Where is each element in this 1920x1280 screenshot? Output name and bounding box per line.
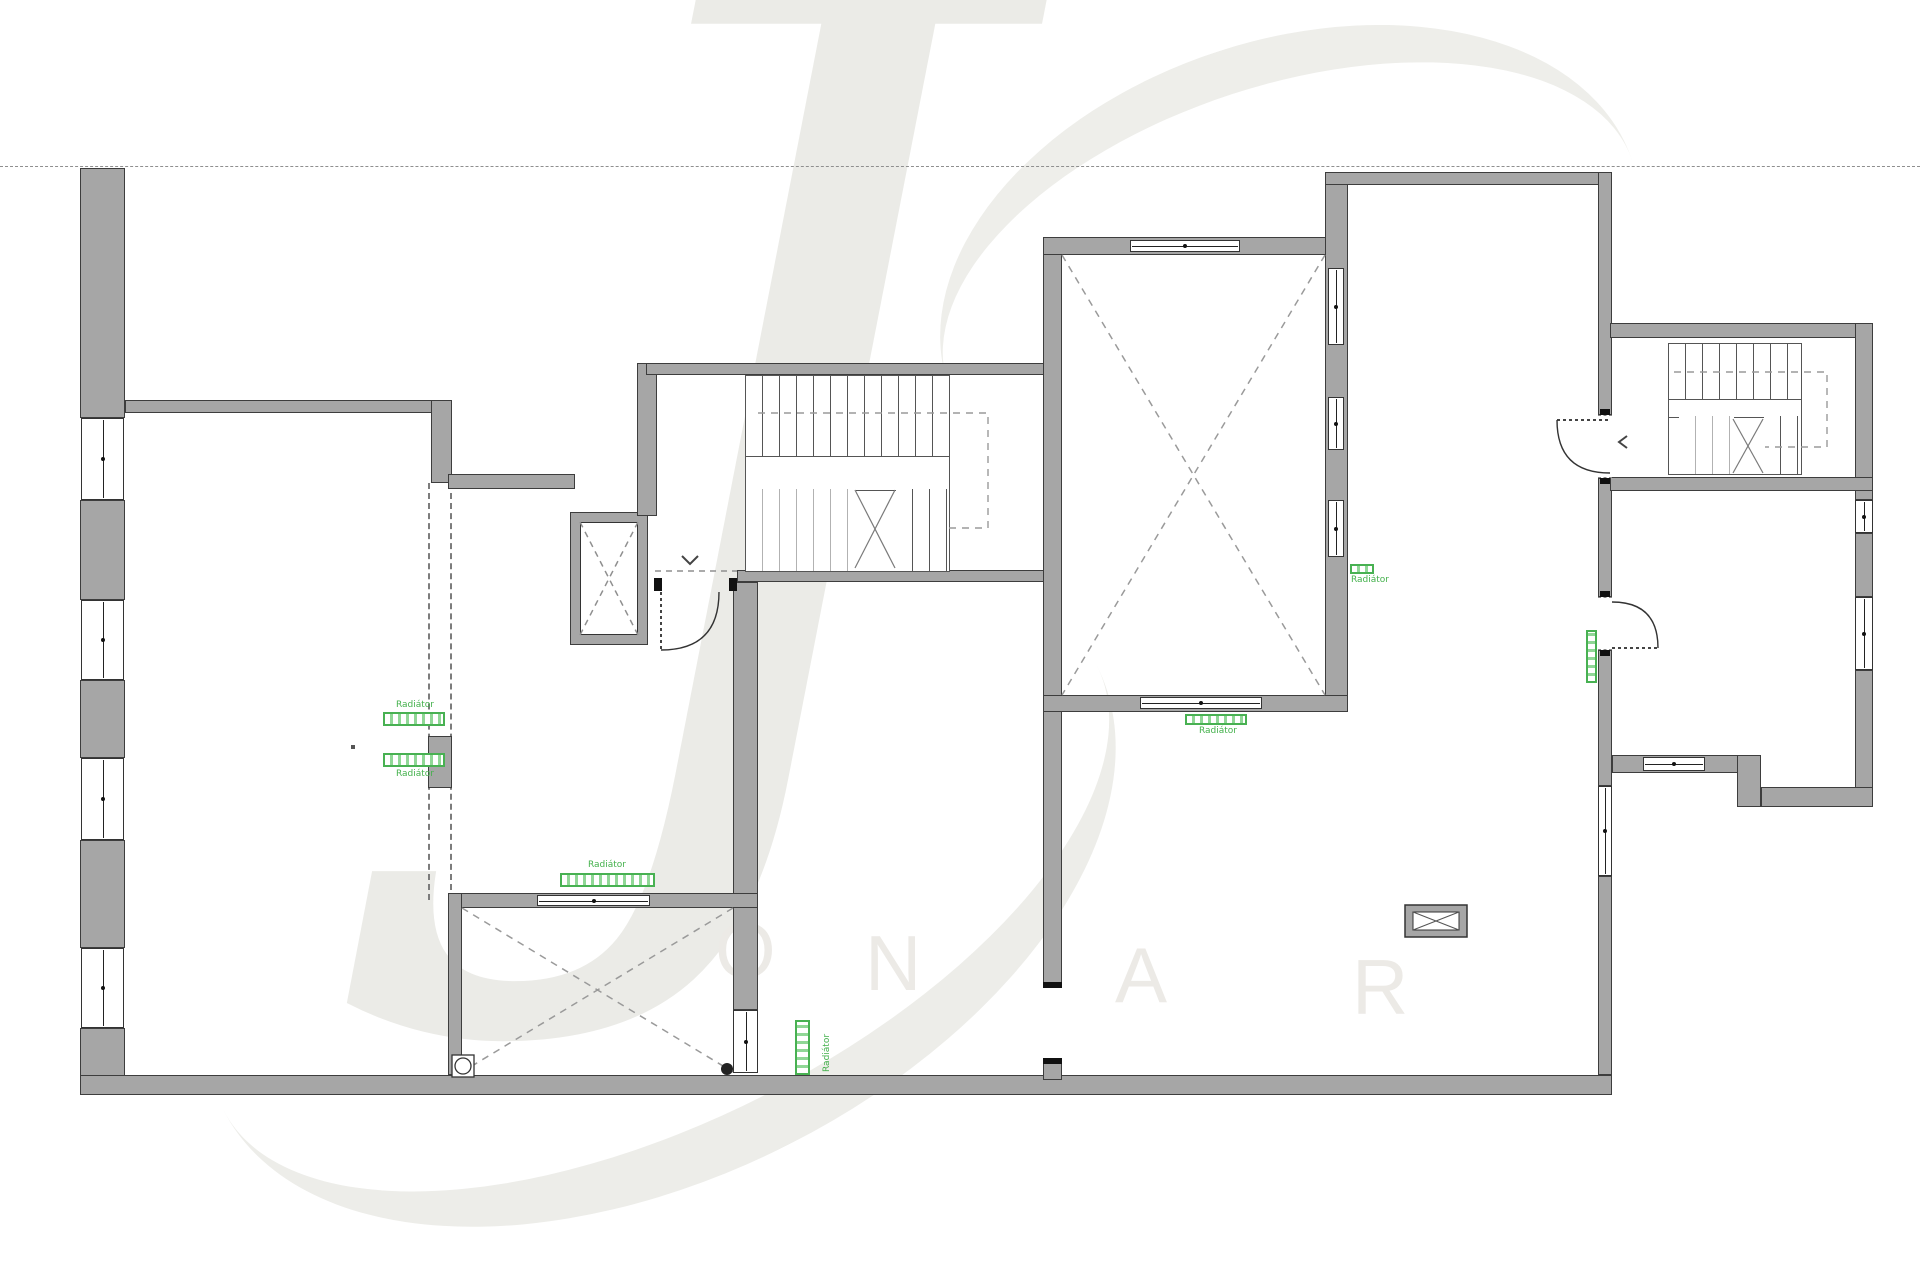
stair-path bbox=[758, 372, 1827, 528]
door-jamb bbox=[1600, 591, 1610, 597]
plan-annotations bbox=[0, 0, 1920, 1280]
door-jamb bbox=[729, 578, 737, 591]
radiator bbox=[1586, 630, 1597, 683]
door-jamb bbox=[1043, 982, 1062, 988]
radiator-label: Radiátor bbox=[552, 860, 662, 870]
radiator bbox=[383, 753, 445, 767]
door-swing bbox=[1557, 420, 1610, 473]
door-jamb bbox=[654, 578, 662, 591]
vent-symbol bbox=[1405, 905, 1467, 937]
door-jamb bbox=[1600, 409, 1610, 415]
radiator bbox=[1185, 714, 1247, 725]
stair-break bbox=[855, 419, 1763, 568]
elevator-cross bbox=[580, 522, 638, 635]
radiator-label: Radiátor bbox=[1340, 575, 1400, 585]
door-jamb bbox=[1043, 1058, 1062, 1064]
door-jamb bbox=[1600, 650, 1610, 656]
radiator-label: Radiátor bbox=[1178, 726, 1258, 736]
door-swing bbox=[1612, 602, 1658, 648]
radiator bbox=[560, 873, 655, 887]
chevron-down-icon bbox=[682, 556, 698, 564]
radiator-label: Radiátor bbox=[822, 1034, 832, 1072]
radiator-label: Radiátor bbox=[375, 700, 455, 710]
radiator bbox=[795, 1020, 810, 1075]
radiator-label: Radiátor bbox=[375, 769, 455, 779]
void-cross bbox=[462, 255, 1325, 1072]
point-symbol bbox=[721, 1063, 733, 1075]
door-swing bbox=[655, 571, 737, 650]
drain-symbol bbox=[452, 1055, 474, 1077]
chevron-left-icon bbox=[1619, 436, 1627, 448]
radiator bbox=[1350, 564, 1374, 574]
radiator bbox=[383, 712, 445, 726]
door-jamb bbox=[1600, 478, 1610, 484]
floor-plan-canvas: J O N A R bbox=[0, 0, 1920, 1280]
